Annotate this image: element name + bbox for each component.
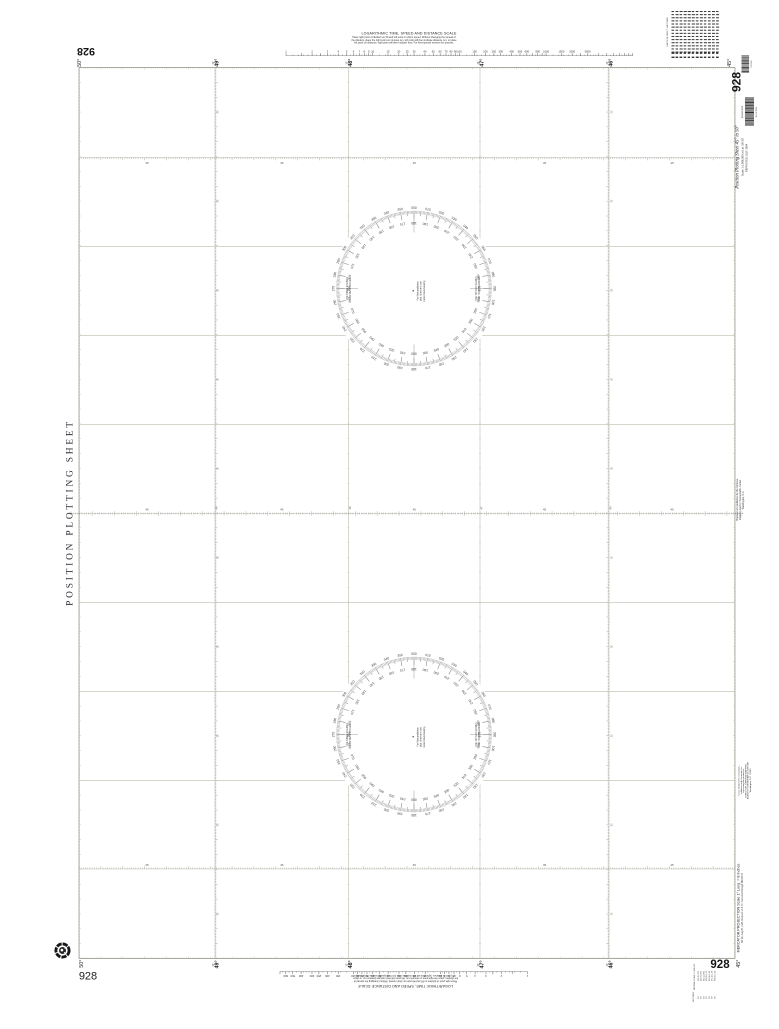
svg-text:25: 25 [406,49,409,53]
svg-text:UNITS OF 600 FT. LATITUDE: UNITS OF 600 FT. LATITUDE [666,17,669,47]
svg-text:800: 800 [535,49,540,53]
svg-text:1000: 1000 [543,49,549,53]
svg-text:000: 000 [411,352,417,356]
svg-text:20: 20 [397,49,400,53]
svg-text:49: 49 [215,506,219,510]
svg-text:15: 15 [386,49,389,53]
svg-text:FOR RECIPROCALS: FOR RECIPROCALS [349,277,352,299]
svg-text:45: 45 [280,863,284,867]
svg-text:090: 090 [492,286,496,292]
svg-text:USE INNER FIGURES: USE INNER FIGURES [347,276,349,300]
svg-text:270: 270 [332,286,336,292]
svg-text:200: 200 [483,49,488,53]
svg-text:USE OUTER FIGURES: USE OUTER FIGURES [476,276,478,301]
svg-text:45: 45 [145,508,149,512]
svg-text:45: 45 [543,863,547,867]
svg-text:50: 50 [432,49,435,53]
svg-text:300: 300 [499,49,504,53]
svg-text:600: 600 [525,49,530,53]
svg-text:3000: 3000 [584,49,590,53]
svg-text:radio inside bearing: radio inside bearing [423,280,426,302]
svg-text:45: 45 [670,161,674,165]
svg-text:60: 60 [439,49,442,53]
svg-text:000: 000 [411,206,417,210]
svg-text:2000: 2000 [569,49,575,53]
svg-text:150: 150 [472,49,477,53]
svg-text:10: 10 [371,49,374,53]
svg-text:45: 45 [280,508,284,512]
svg-text:250: 250 [492,49,497,53]
svg-text:45: 45 [670,863,674,867]
svg-text:45: 45 [145,161,149,165]
svg-text:45: 45 [543,508,547,512]
svg-text:80: 80 [449,49,452,53]
svg-text:180: 180 [411,367,417,371]
svg-text:45: 45 [670,508,674,512]
svg-text:500: 500 [518,49,523,53]
svg-text:45: 45 [145,863,149,867]
svg-text:46: 46 [609,506,613,510]
svg-text:48: 48 [348,506,352,510]
svg-text:400: 400 [509,49,514,53]
svg-text:left point on distance, right: left point on distance, right point will… [354,42,454,45]
svg-text:180: 180 [411,221,417,225]
svg-text:1500: 1500 [558,49,564,53]
svg-text:45: 45 [413,863,417,867]
svg-text:FOR TRUE BEARINGS: FOR TRUE BEARINGS [478,276,481,301]
svg-text:45: 45 [413,161,417,165]
svg-text:30: 30 [413,49,416,53]
svg-text:45: 45 [543,161,547,165]
svg-text:70: 70 [444,49,447,53]
svg-text:47: 47 [480,506,484,510]
svg-text:100: 100 [457,49,462,53]
svg-text:45: 45 [413,508,417,512]
svg-text:45: 45 [280,161,284,165]
svg-text:40: 40 [423,49,426,53]
